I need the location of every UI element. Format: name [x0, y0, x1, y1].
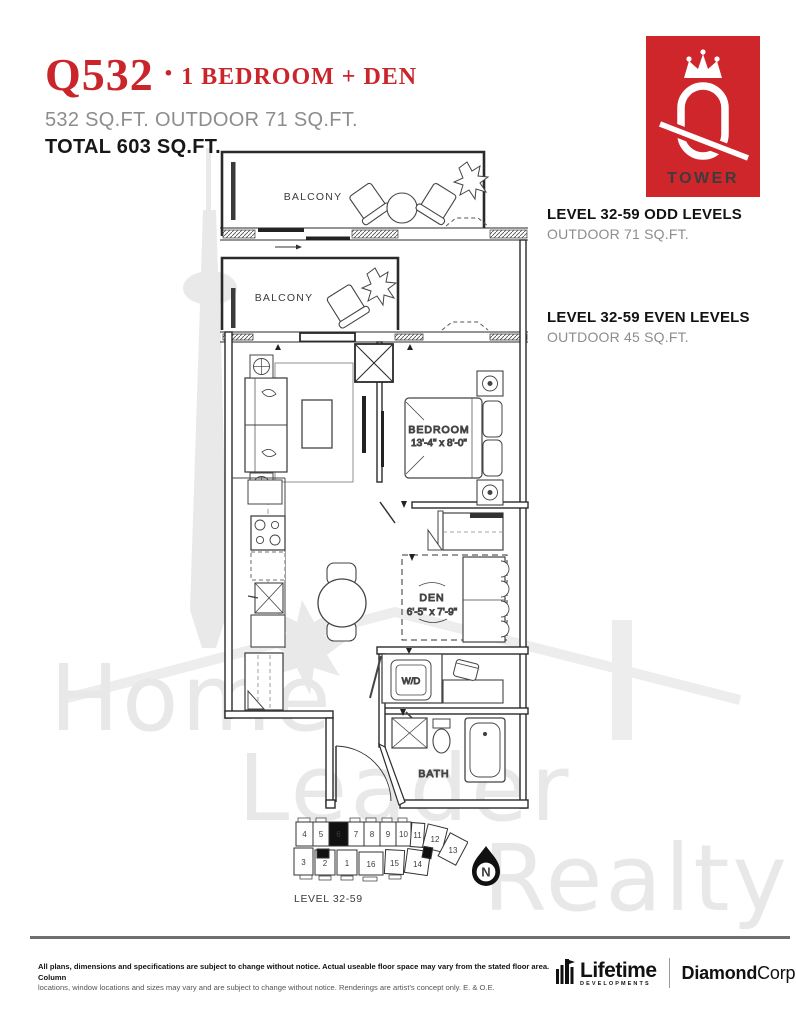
brand-separator — [669, 958, 670, 988]
pillow — [483, 440, 502, 476]
den: DEN 6'-5" x 7'-9" — [402, 554, 509, 642]
den-dims: 6'-5" x 7'-9" — [407, 607, 458, 618]
svg-text:16: 16 — [367, 860, 376, 869]
bedroom-dims: 13'-4" x 8'-0" — [411, 438, 467, 449]
tv-panel — [362, 396, 366, 453]
level-even-title: LEVEL 32-59 EVEN LEVELS — [547, 309, 750, 326]
media-panel — [381, 411, 384, 467]
entry-closet — [245, 653, 283, 710]
north-label: N — [481, 865, 490, 880]
dining-table — [318, 579, 366, 627]
balcony-odd-label: BALCONY — [284, 191, 343, 203]
bath-label: BATH — [418, 768, 449, 780]
pillow — [483, 401, 502, 437]
den-daybed — [463, 557, 509, 642]
diamondcorp-rest: Corp — [757, 963, 795, 983]
level-odd-outdoor: OUTDOOR 71 SQ.FT. — [547, 226, 742, 242]
svg-text:6: 6 — [336, 830, 341, 839]
unit-code: Q532 — [45, 49, 154, 100]
balcony-even-label: BALCONY — [255, 292, 314, 304]
disclaimer-text: All plans, dimensions and specifications… — [38, 962, 553, 994]
toilet — [433, 719, 450, 753]
level-even-outdoor: OUTDOOR 45 SQ.FT. — [547, 329, 750, 345]
level-even-annotation: LEVEL 32-59 EVEN LEVELS OUTDOOR 45 SQ.FT… — [547, 309, 750, 345]
disclaimer-line-1: All plans, dimensions and specifications… — [38, 962, 553, 983]
desk-nook — [443, 659, 503, 703]
tower-label: TOWER — [667, 170, 739, 187]
keyplan: 4 5 6 7 8 9 10 11 12 13 3 2 1 16 15 14 — [292, 816, 468, 890]
svg-text:7: 7 — [354, 830, 359, 839]
svg-text:2: 2 — [323, 859, 328, 868]
bedroom-door — [380, 501, 407, 523]
area-total: TOTAL 603 SQ.FT. — [45, 136, 417, 159]
fridge — [248, 480, 282, 504]
bedroom-label: BEDROOM — [408, 424, 469, 436]
patio-chair-right — [415, 181, 460, 226]
stove — [251, 516, 285, 550]
title-block: Q532·1 BEDROOM + DEN 532 SQ.FT. OUTDOOR … — [45, 48, 417, 159]
floorplan-drawing: BALCONY BALCONY — [220, 140, 534, 824]
den-label: DEN — [419, 592, 444, 604]
diamondcorp-bold: Diamond — [682, 963, 758, 983]
laundry-label: W/D — [402, 676, 421, 687]
desk — [443, 680, 503, 703]
area-subtitle: 532 SQ.FT. OUTDOOR 71 SQ.FT. — [45, 109, 417, 132]
lifetime-developments-label: DEVELOPMENTS — [580, 981, 657, 987]
unit-type: 1 BEDROOM + DEN — [181, 64, 417, 90]
keyplan-caption: LEVEL 32-59 — [294, 893, 363, 905]
lifetime-logo: Lifetime DEVELOPMENTS — [556, 959, 657, 987]
x-closet — [355, 344, 393, 382]
north-arrow-icon: N — [468, 844, 504, 890]
floorplan-page: Home Leader Realty Q532·1 BEDROOM + DEN … — [0, 0, 796, 1030]
title-separator-dot: · — [154, 55, 181, 92]
level-odd-title: LEVEL 32-59 ODD LEVELS — [547, 206, 742, 223]
q-mark — [660, 86, 748, 158]
kitchen-cabinet — [251, 615, 285, 647]
lifetime-building-icon — [556, 959, 576, 987]
svg-text:5: 5 — [319, 830, 324, 839]
bathtub — [465, 718, 505, 782]
bedroom: BEDROOM 13'-4" x 8'-0" — [405, 371, 503, 505]
svg-text:10: 10 — [399, 830, 408, 839]
svg-text:8: 8 — [370, 830, 375, 839]
svg-text:13: 13 — [449, 846, 458, 855]
dining-set — [318, 563, 366, 641]
svg-text:1: 1 — [345, 859, 350, 868]
svg-text:4: 4 — [302, 830, 307, 839]
watermark-word-3: Realty — [483, 825, 790, 932]
bathroom: BATH — [392, 709, 505, 782]
q-tower-logo: TOWER — [646, 36, 760, 197]
developer-brands: Lifetime DEVELOPMENTS DiamondCorp — [556, 952, 795, 994]
svg-text:15: 15 — [390, 859, 399, 868]
svg-text:14: 14 — [413, 860, 422, 869]
patio-chair-even — [324, 282, 371, 329]
svg-text:9: 9 — [386, 830, 391, 839]
svg-text:12: 12 — [431, 835, 440, 844]
diamondcorp-logo: DiamondCorp — [682, 963, 796, 984]
disclaimer-line-2: locations, window locations and sizes ma… — [38, 983, 553, 994]
patio-chair-left — [346, 181, 391, 226]
coffee-table — [302, 400, 332, 448]
lifetime-wordmark: Lifetime — [580, 962, 657, 981]
crown-icon — [684, 49, 722, 78]
footer-divider — [30, 936, 790, 939]
kitchen — [232, 478, 285, 710]
plant-icon — [362, 268, 396, 305]
page-title: Q532·1 BEDROOM + DEN — [45, 48, 417, 101]
patio-table — [387, 193, 417, 223]
svg-text:3: 3 — [301, 858, 306, 867]
svg-text:11: 11 — [413, 831, 422, 840]
desk-chair — [453, 659, 479, 681]
balcony-odd: BALCONY — [220, 152, 528, 250]
bench-daybed — [428, 511, 503, 550]
level-odd-annotation: LEVEL 32-59 ODD LEVELS OUTDOOR 71 SQ.FT. — [547, 206, 742, 242]
balcony-even: BALCONY — [222, 258, 398, 330]
